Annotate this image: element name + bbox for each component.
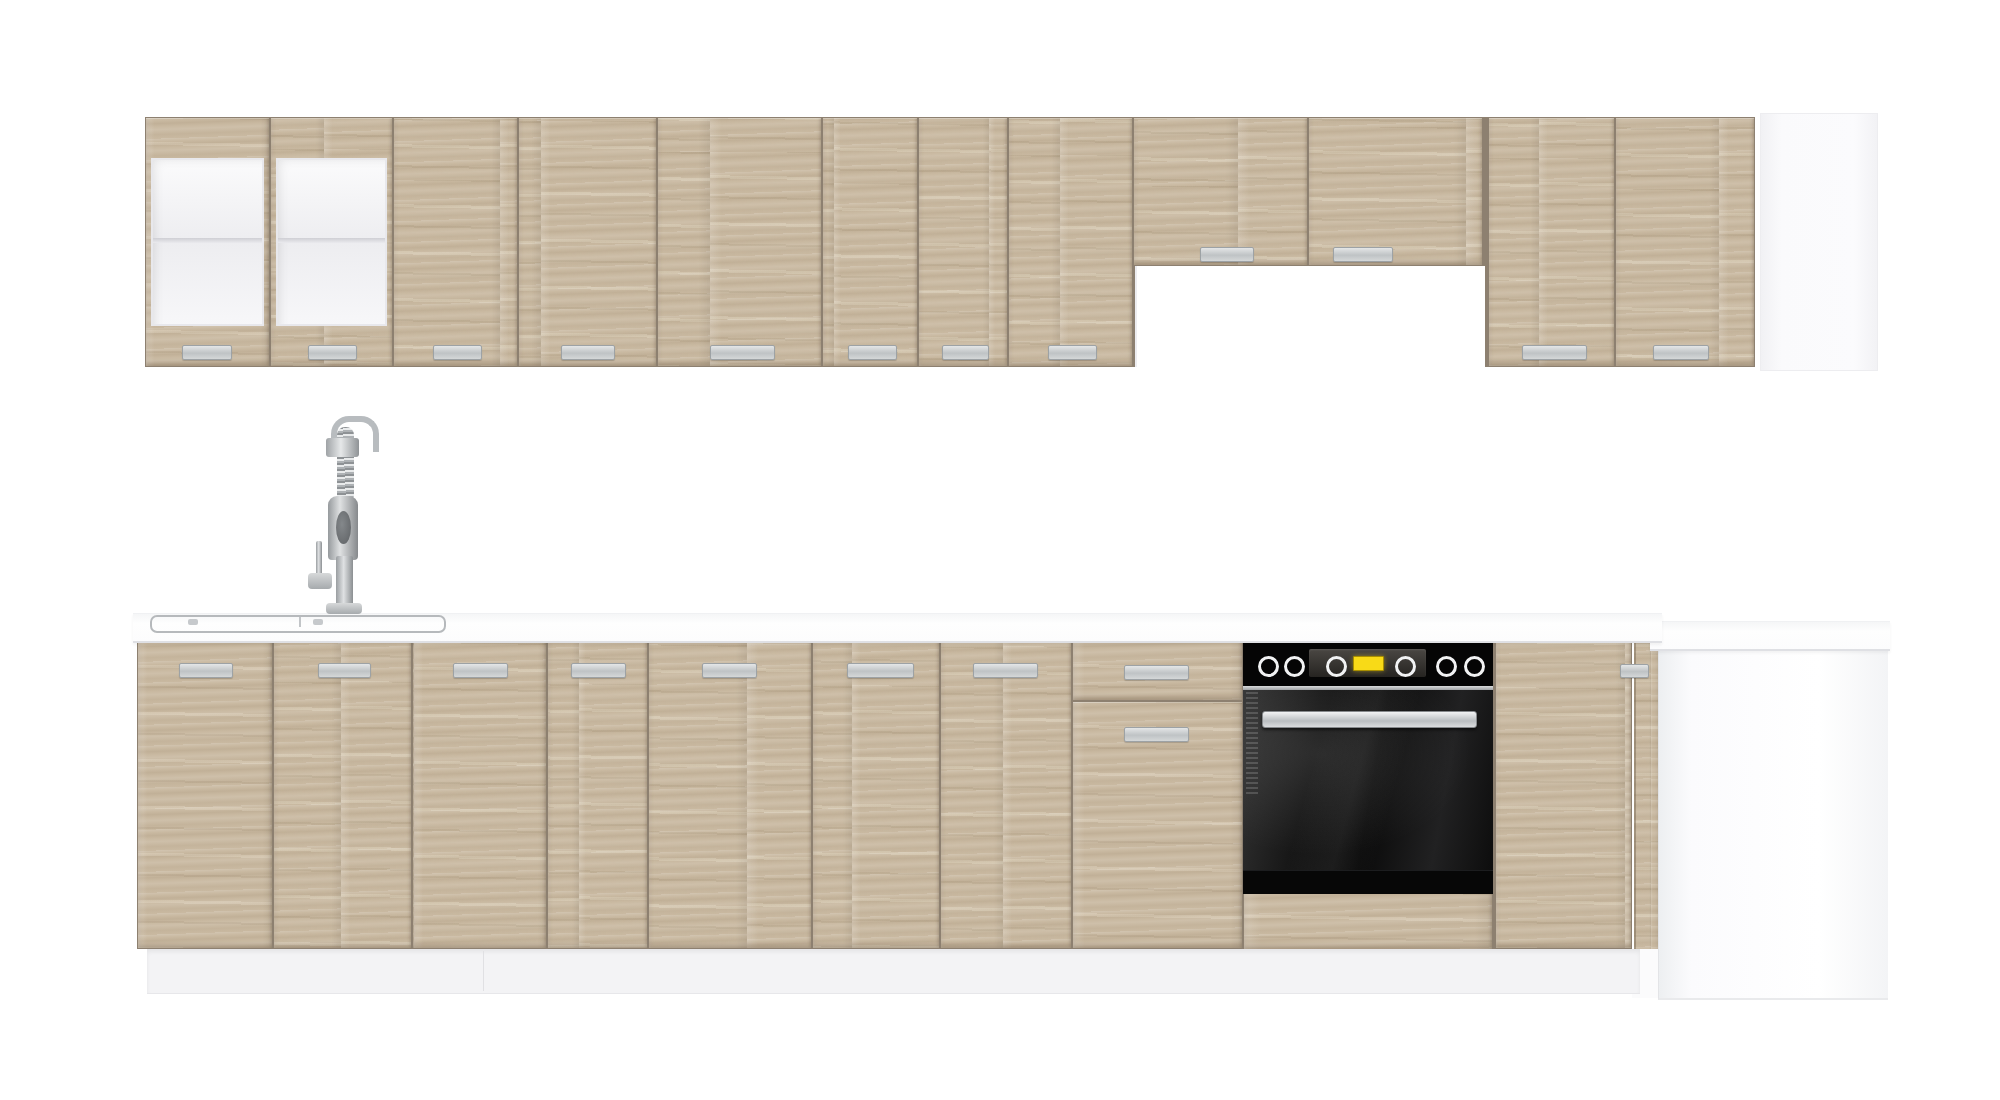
sink-drain xyxy=(313,619,323,625)
oven-knob xyxy=(1284,656,1305,677)
wall-cabinet-door xyxy=(919,118,1007,366)
oven-knob xyxy=(1258,656,1279,677)
cabinet-handle xyxy=(308,345,357,360)
wall-cabinet-door xyxy=(394,118,517,366)
wall-cabinet-door xyxy=(658,118,821,366)
tap-lever-knob xyxy=(308,573,332,589)
cabinet-handle xyxy=(847,663,914,678)
glass-shelf xyxy=(278,238,385,243)
oven-door-handle xyxy=(1262,711,1477,728)
oven-knob xyxy=(1436,656,1457,677)
cabinet-handle xyxy=(1522,345,1587,360)
cabinet-handle xyxy=(453,663,508,678)
upper-end-panel xyxy=(1760,113,1878,371)
wall-cabinet-door xyxy=(1616,118,1754,366)
base-cabinet-door xyxy=(649,641,811,948)
cabinet-handle xyxy=(1048,345,1097,360)
base-cabinet-door xyxy=(413,641,546,948)
oven-knob xyxy=(1464,656,1485,677)
plinth xyxy=(147,949,1640,994)
glass-pane xyxy=(276,158,387,326)
oven-knob xyxy=(1326,656,1347,677)
cabinet-handle xyxy=(179,663,233,678)
drawer-handle xyxy=(1124,665,1189,680)
cabinet-handle xyxy=(942,345,989,360)
oven-knob xyxy=(1395,656,1416,677)
wall-cabinet-door xyxy=(1009,118,1132,366)
cabinet-handle xyxy=(433,345,482,360)
cooker-hood-recess xyxy=(1135,266,1485,367)
oven-display-readout xyxy=(1353,656,1384,671)
cabinet-handle xyxy=(182,345,232,360)
wall-cabinet-door xyxy=(519,118,656,366)
cabinet-handle xyxy=(710,345,775,360)
tap-column xyxy=(336,556,353,608)
kitchen-product-render xyxy=(0,0,2000,1100)
cabinet-handle xyxy=(561,345,615,360)
cabinet-handle xyxy=(571,663,626,678)
wall-cabinet-door xyxy=(823,118,917,366)
hood-flap-door xyxy=(1134,118,1307,265)
cabinet-handle xyxy=(318,663,371,678)
cabinet-handle xyxy=(702,663,757,678)
oven-bottom-trim xyxy=(1243,870,1493,894)
corner-base-cabinet xyxy=(1658,640,1888,1000)
glass-display-door xyxy=(271,118,392,366)
base-cabinet-door xyxy=(1496,641,1631,948)
cabinet-handle xyxy=(1200,247,1254,262)
base-cabinet-door xyxy=(941,641,1071,948)
oven-vent-grille xyxy=(1246,692,1258,795)
glass-display-door xyxy=(146,118,269,366)
cabinet-handle xyxy=(973,663,1038,678)
glass-pane xyxy=(151,158,264,326)
tap-spout-hole xyxy=(336,511,351,544)
sink-drain xyxy=(188,619,198,625)
tap-head xyxy=(326,438,359,457)
plinth-seam xyxy=(483,951,484,991)
base-cabinet-door xyxy=(813,641,939,948)
base-cabinet-door xyxy=(548,641,647,948)
under-oven-panel xyxy=(1244,893,1492,949)
sink-divider xyxy=(299,617,301,627)
cabinet-handle xyxy=(1333,247,1393,262)
wall-cabinet-door xyxy=(1489,118,1614,366)
corner-cabinet-door xyxy=(1634,643,1661,960)
cabinet-handle xyxy=(1653,345,1709,360)
cabinet-handle xyxy=(1620,664,1649,678)
drawer-handle xyxy=(1124,727,1189,742)
base-cabinet-door xyxy=(274,641,411,948)
hood-flap-door xyxy=(1309,118,1482,265)
base-cabinet-door xyxy=(138,641,272,948)
tap-base-plate xyxy=(326,603,362,614)
cabinet-handle xyxy=(848,345,897,360)
glass-shelf xyxy=(153,238,262,243)
worktop-corner-section xyxy=(1650,621,1890,651)
